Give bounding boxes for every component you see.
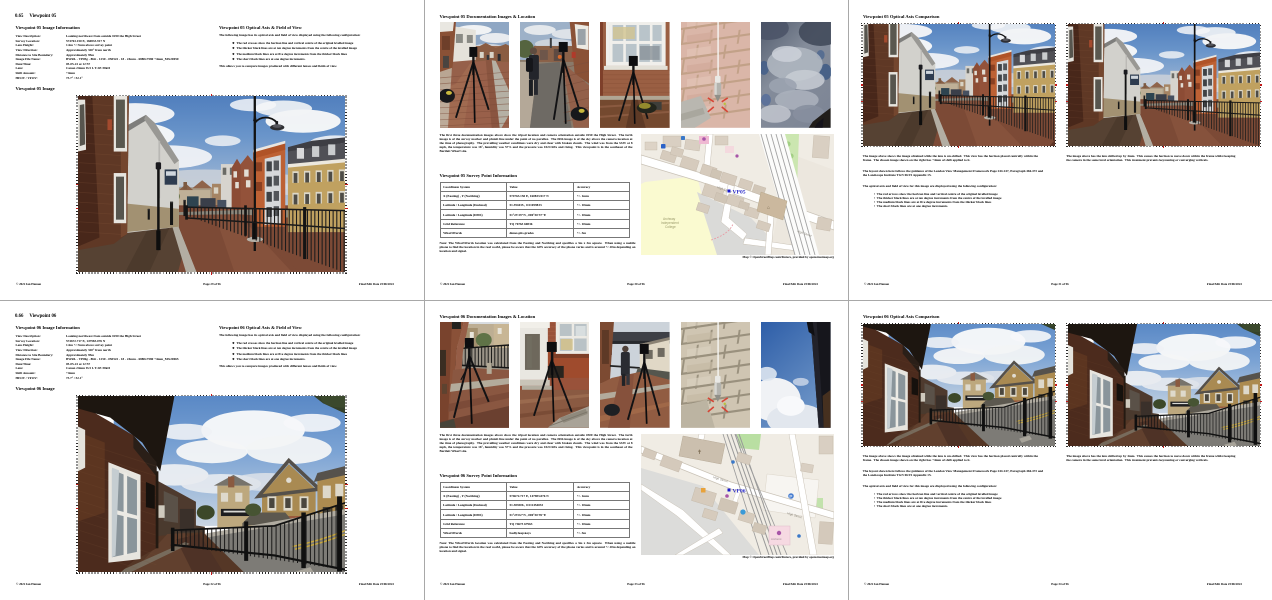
svg-text:VP05: VP05 (733, 190, 746, 196)
svg-text:P: P (789, 494, 792, 499)
svg-text:College: College (665, 225, 676, 229)
svg-text:VP06: VP06 (733, 489, 746, 495)
svg-text:⌂: ⌂ (767, 205, 770, 211)
svg-text:✝: ✝ (697, 449, 702, 456)
svg-text:Amherst: Amherst (771, 537, 782, 541)
